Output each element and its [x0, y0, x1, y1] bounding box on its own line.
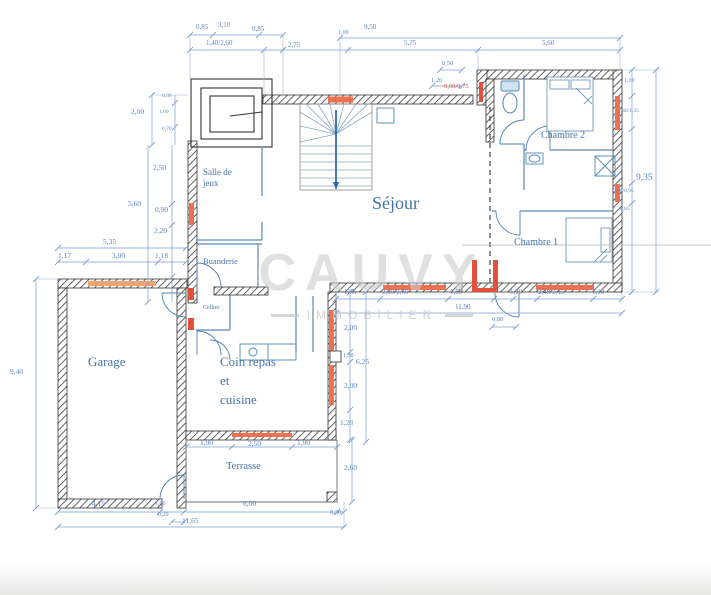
- dim-label: 1,65: [344, 289, 356, 296]
- dim-label: 1,85: [450, 289, 462, 296]
- dim-label: 1,40/2,60: [206, 40, 232, 47]
- dim-label: 0,90: [155, 206, 168, 214]
- room-label-buanderie: Buanderie: [203, 257, 238, 267]
- dim-label: 0,30: [330, 510, 341, 517]
- dim-label: 5,60: [128, 200, 141, 208]
- dim-label: 3,10: [218, 22, 230, 29]
- dim-label: 0,85: [252, 26, 264, 33]
- dim-label: 2,80/2,60: [382, 289, 408, 296]
- room-label-coin-repas-line2: et: [220, 374, 229, 389]
- wall-duct-box: [330, 351, 341, 362]
- dim-label: 1,00: [155, 501, 166, 507]
- floor-plan: CAUVY IMMOBILIER Séjour Garage Chambre 2…: [0, 0, 711, 595]
- dim-label: 2,40/2,15: [538, 289, 564, 296]
- dim-label: 2,75: [288, 42, 300, 49]
- watermark-dash: [271, 314, 299, 317]
- bed-chambre2: [547, 77, 593, 131]
- dim-label: 2,20: [154, 227, 167, 235]
- room-label-coin-repas-line3: cuisine: [220, 393, 257, 408]
- dim-label: 9,50: [364, 24, 376, 31]
- dim-label: 1,10: [510, 289, 522, 296]
- dim-label: 3,00: [112, 252, 125, 260]
- dim-label: 2,50: [248, 440, 261, 448]
- watermark-dash: [445, 314, 473, 317]
- dim-label: 2,60: [344, 464, 357, 472]
- dim-label: 0,70: [162, 127, 172, 133]
- room-label-chambre1: Chambre 1: [514, 237, 558, 249]
- room-label-salle-de-jeux-line2: jeux: [203, 178, 219, 188]
- terrace-outline: [186, 440, 337, 502]
- room-label-cellier: Cellier: [203, 305, 219, 312]
- sink-icon: [526, 153, 543, 164]
- room-label-salle-de-jeux-line1: Salle de: [203, 167, 232, 177]
- dim-label: 1,90: [200, 439, 213, 447]
- dim-label: 11,65: [182, 517, 199, 525]
- dim-label: 4,15: [92, 500, 105, 508]
- room-label-terrasse: Terrasse: [226, 461, 261, 473]
- dim-label: 1,00: [338, 30, 349, 36]
- dim-label: 0,80: [492, 317, 503, 324]
- fireplace: [191, 79, 272, 147]
- dim-label: 0,60/0,75: [444, 84, 469, 91]
- toilet-icon: [501, 81, 519, 113]
- staircase: [300, 104, 372, 190]
- dim-label: 5,35: [103, 238, 116, 246]
- dim-label: 1,00: [159, 110, 169, 116]
- dim-label: 1,20: [431, 78, 442, 85]
- dim-label: 0,85: [196, 24, 208, 31]
- dim-label: 0,50: [442, 61, 453, 68]
- dim-label: 6,85: [620, 207, 630, 213]
- watermark-subtitle-text: IMMOBILIER: [307, 308, 438, 322]
- dim-label: 6,25: [356, 358, 369, 366]
- dim-label: 5,60: [542, 40, 554, 47]
- dim-label: 0,20: [158, 512, 169, 518]
- dim-label: 1,17: [58, 252, 71, 260]
- dim-label: 1,10: [624, 78, 635, 84]
- dim-label: 9,40: [10, 368, 23, 376]
- dim-label: 11,90: [455, 304, 471, 311]
- shower-icon: [595, 156, 615, 176]
- dim-label: 0,80/0,95: [613, 189, 634, 195]
- dim-label: 1,30: [343, 353, 354, 359]
- dim-label: 2,50: [153, 164, 166, 172]
- dim-label: 9,35: [636, 174, 653, 184]
- dim-label: 1,10: [592, 289, 604, 296]
- room-label-coin-repas-line1: Coin repas: [220, 355, 276, 370]
- dim-label: 1,90: [297, 439, 310, 447]
- dim-label: 0,30: [162, 94, 172, 100]
- dim-label: 2,00: [131, 108, 144, 116]
- dim-label: 1,28: [340, 419, 353, 427]
- dim-label: 1,40/1,35: [618, 109, 639, 115]
- dim-label: 1,18: [155, 252, 168, 260]
- dim-label: 6,00: [243, 500, 256, 508]
- bed-chambre1: [566, 218, 612, 262]
- dim-label: 5,75: [404, 40, 416, 47]
- dim-label: 2,00: [344, 324, 357, 332]
- sejour-floor-box: [377, 108, 394, 123]
- dim-label: 2,00: [344, 382, 357, 390]
- room-label-chambre2: Chambre 2: [541, 130, 585, 142]
- room-label-sejour: Séjour: [372, 193, 419, 214]
- room-label-garage: Garage: [88, 355, 126, 370]
- scan-shade: [0, 562, 711, 595]
